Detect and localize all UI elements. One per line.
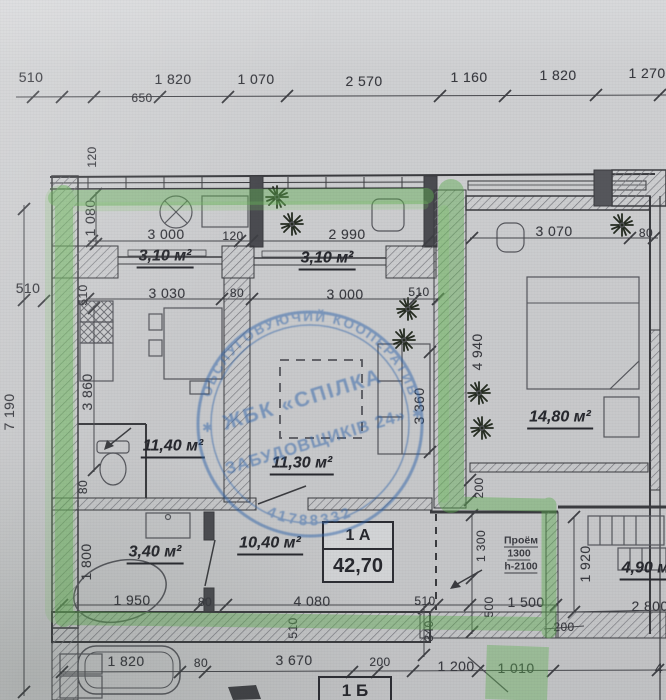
dim-label: 1 200	[437, 658, 474, 674]
dim-label: 1 080	[82, 199, 98, 236]
dim-label: 3 030	[148, 285, 185, 301]
room-area-neighbor: 4,90 м²	[620, 560, 666, 581]
dim-label: 80	[76, 480, 90, 494]
dim-label: 510	[414, 594, 435, 608]
room-area-balcony-2: 3,10 м²	[299, 250, 356, 271]
stamp-watermark: ОБСЛУГОВУЮЧИЙ КООПЕРАТИВ 41788332 ✱ ✱ ЖБ…	[198, 309, 423, 536]
dim-label: 510	[76, 284, 90, 305]
stamp-arc-text: ОБСЛУГОВУЮЧИЙ КООПЕРАТИВ	[199, 309, 421, 399]
dim-label: 3 000	[326, 286, 363, 302]
unit-info-box-1b: 1 Б	[318, 676, 392, 700]
svg-text:ОБСЛУГОВУЮЧИЙ КООПЕРАТИВ: ОБСЛУГОВУЮЧИЙ КООПЕРАТИВ	[199, 309, 421, 399]
dim-label: 120	[222, 229, 243, 243]
dim-label: 510	[16, 280, 41, 296]
room-area-bathroom: 3,40 м²	[127, 544, 184, 565]
dim-label: 510	[19, 69, 44, 85]
dim-label: 80	[198, 595, 212, 609]
dim-label: 2 800	[631, 598, 666, 614]
overlay-layer: ОБСЛУГОВУЮЧИЙ КООПЕРАТИВ 41788332 ✱ ✱ ЖБ…	[0, 0, 666, 700]
dim-label: 2 570	[345, 73, 382, 89]
dim-label: 3 070	[535, 223, 572, 239]
dim-label: 1 010	[497, 660, 534, 676]
dim-label: 3 670	[275, 652, 312, 668]
dim-label: 510	[286, 617, 300, 638]
dim-label: 80	[230, 286, 244, 300]
dim-label: 120	[85, 146, 99, 167]
dim-label: 3 360	[411, 387, 427, 424]
unit-total-area: 42,70	[324, 550, 392, 582]
floorplan-scan: 510 650 1 820 1 070 2 570 1 160 1 820 1 …	[0, 0, 666, 700]
dim-label: 200	[553, 620, 574, 634]
dim-label: 1 800	[78, 543, 94, 580]
dim-label: 510	[408, 285, 429, 299]
dim-label: 650	[131, 91, 152, 105]
room-area-balcony-1: 3,10 м²	[137, 248, 194, 269]
dim-label: 4	[655, 660, 663, 676]
dim-label: 200	[369, 655, 390, 669]
drawing-layer	[0, 0, 666, 700]
photo-grain	[0, 0, 666, 700]
dim-label: 1 820	[539, 67, 576, 83]
stamp-star-left: ✱	[202, 420, 213, 435]
unit-info-box-1a: 1 А 42,70	[322, 521, 394, 583]
dim-label: 4 940	[469, 333, 485, 370]
room-area-kitchen: 11,40 м²	[141, 438, 205, 459]
opening-width: 1300	[507, 548, 530, 561]
dim-label: 2 990	[328, 226, 365, 242]
dim-label: 80	[639, 226, 653, 240]
dim-label: 1 160	[450, 69, 487, 85]
dim-label: 4 080	[293, 593, 330, 609]
room-area-bedroom: 14,80 м²	[527, 409, 593, 430]
room-area-hallway: 10,40 м²	[237, 535, 303, 556]
stamp-name-line1: ЖБК «СПІЛКА	[219, 364, 385, 435]
dim-label: 1 950	[113, 592, 150, 608]
dim-label: 200	[472, 477, 486, 498]
opening-height: h-2100	[504, 561, 537, 574]
dim-label: 7 190	[1, 393, 17, 430]
dim-label: 1 300	[474, 530, 488, 562]
dim-label: 80	[194, 656, 208, 670]
unit-number: 1 А	[324, 523, 392, 550]
opening-label: Проём	[504, 535, 538, 548]
dim-label: 1 070	[237, 71, 274, 87]
dim-label: 340	[422, 620, 436, 641]
dim-label: 1 500	[507, 594, 544, 610]
dim-label: 1 820	[107, 653, 144, 669]
dim-label: 3 000	[147, 226, 184, 242]
dim-label: 1 820	[154, 71, 191, 87]
room-area-living: 11,30 м²	[270, 455, 334, 476]
dim-label: 500	[482, 596, 496, 617]
dim-label: 3 860	[79, 373, 95, 410]
dim-label: 1 920	[577, 545, 593, 582]
dim-label: 1 270	[628, 65, 665, 81]
